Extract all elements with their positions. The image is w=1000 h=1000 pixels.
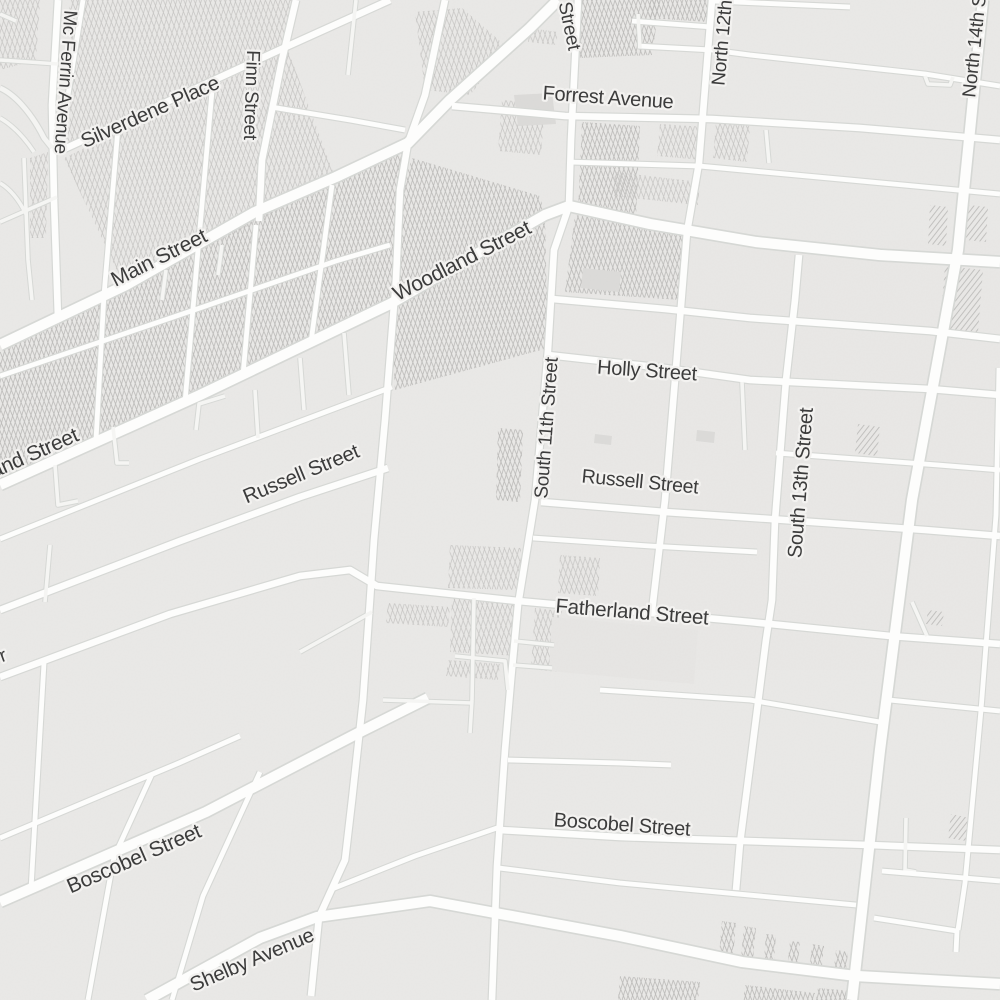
svg-text:Finn Street: Finn Street [239,50,263,141]
